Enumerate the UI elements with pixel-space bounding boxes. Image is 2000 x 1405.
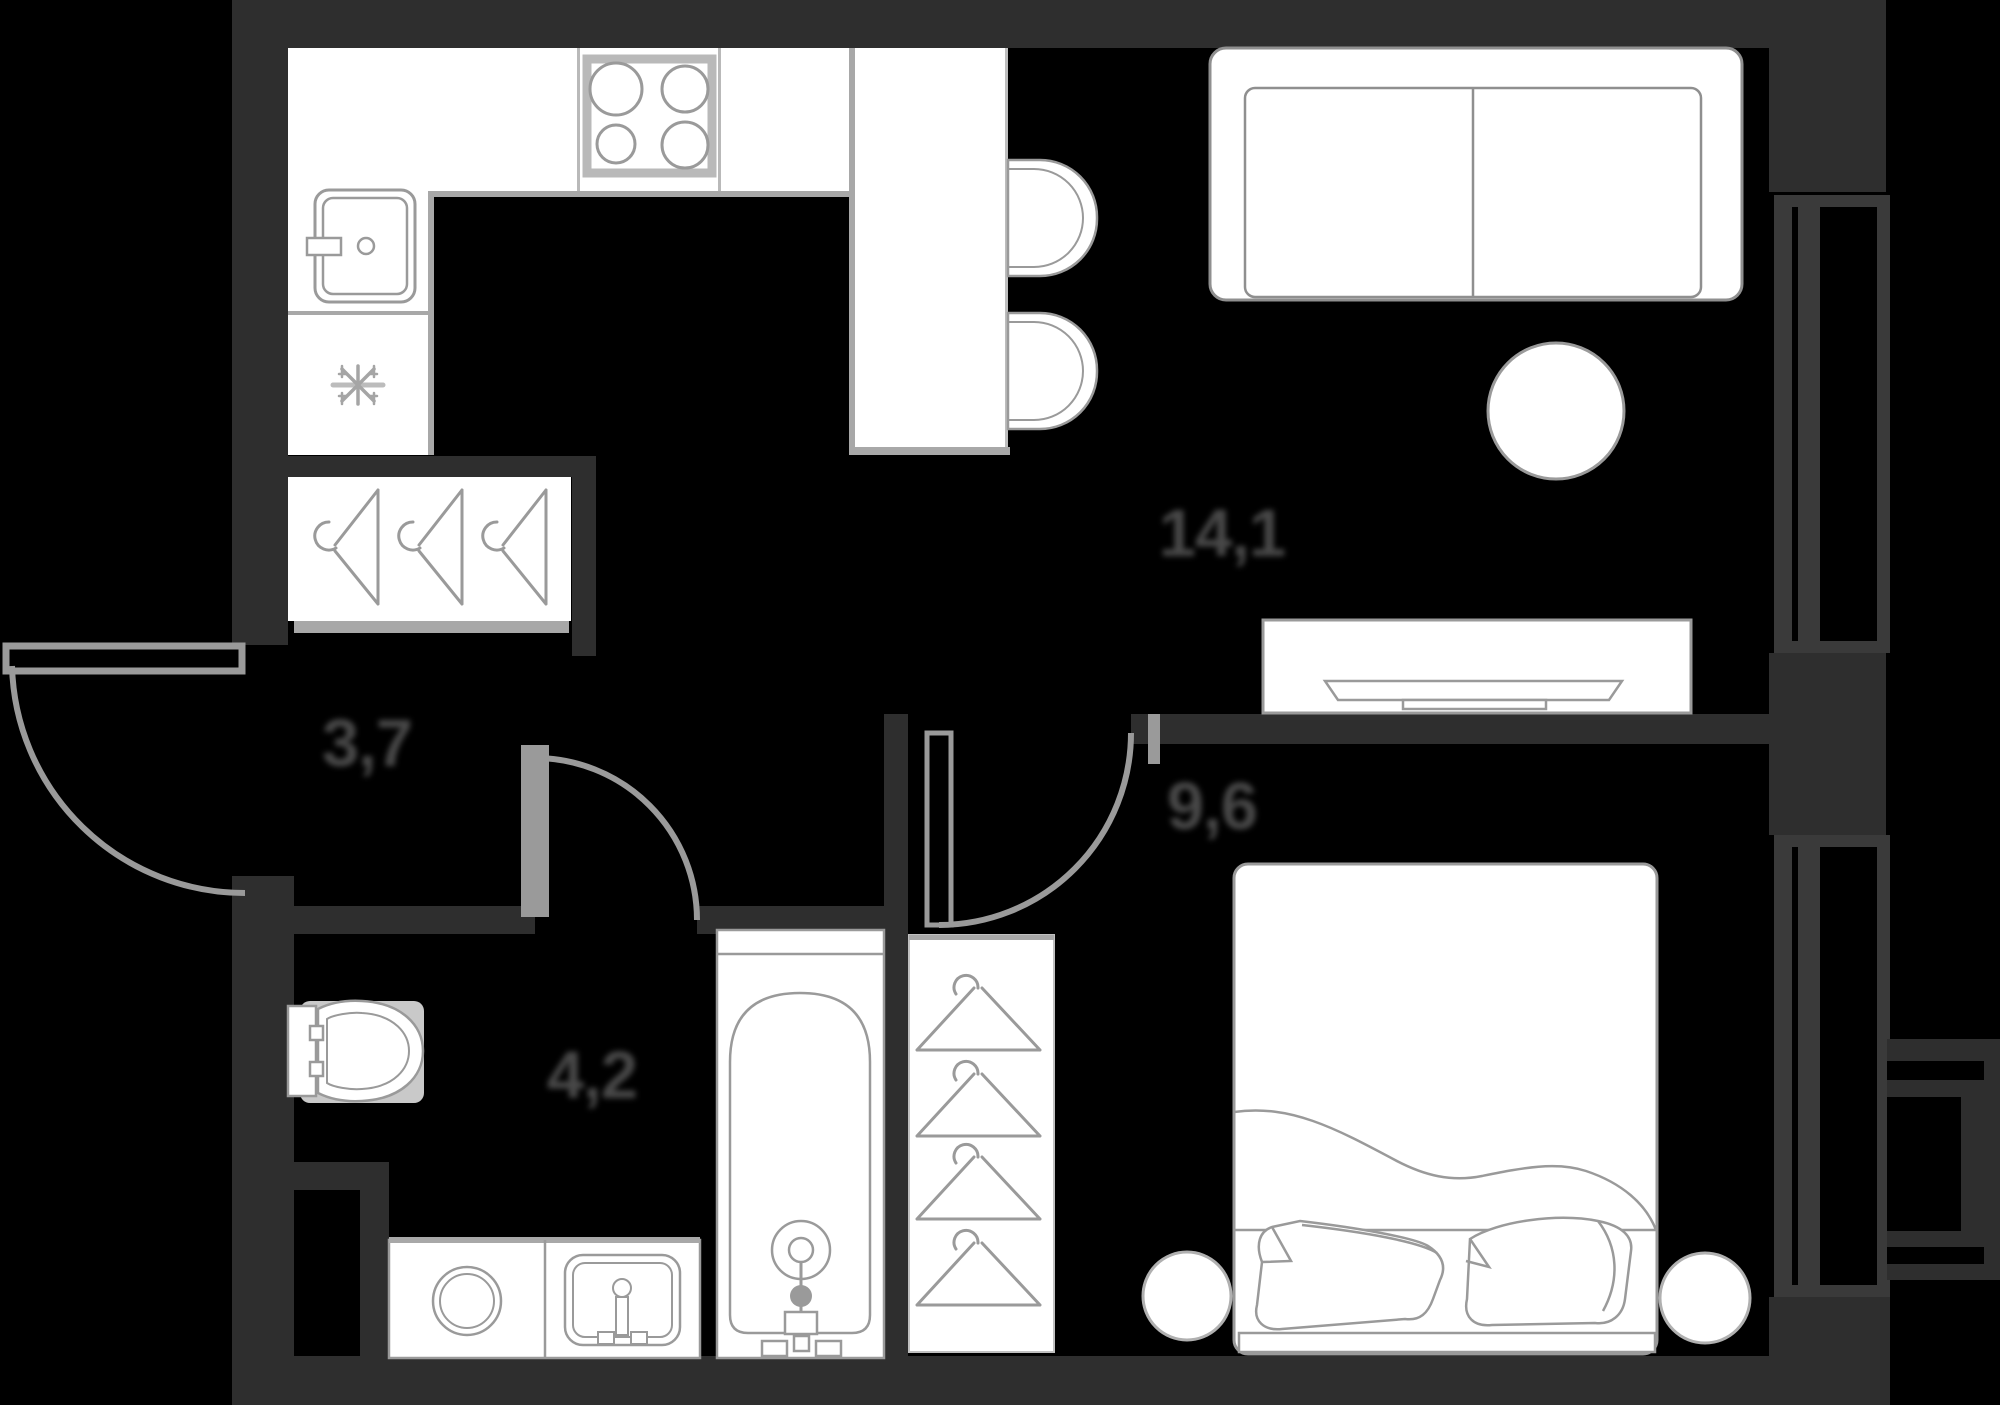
svg-text:14,1: 14,1 bbox=[1159, 496, 1285, 571]
svg-text:3,7: 3,7 bbox=[322, 706, 412, 781]
svg-text:9,6: 9,6 bbox=[1167, 769, 1257, 844]
svg-text:4,2: 4,2 bbox=[547, 1038, 637, 1113]
